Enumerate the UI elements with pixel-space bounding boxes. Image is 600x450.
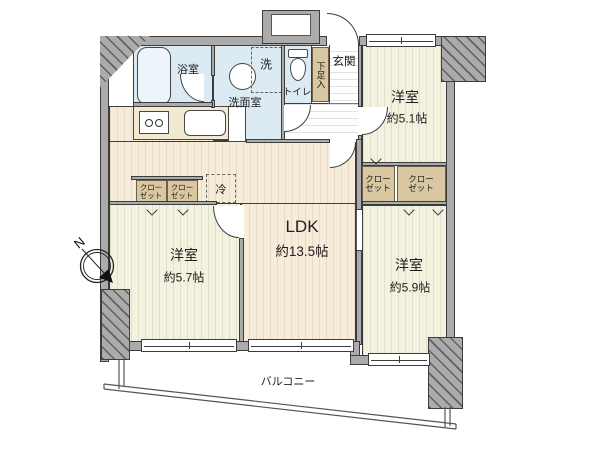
door-gap	[239, 205, 244, 238]
label-entrance: 玄関	[333, 53, 356, 69]
label-bath: 浴室	[177, 61, 199, 77]
wall-right	[446, 36, 455, 367]
kitchen-sink	[184, 110, 226, 136]
label-laundry: 洗	[260, 56, 272, 73]
corner-pillar-bottom-right	[428, 337, 463, 409]
label-refrigerator: 冷	[216, 181, 227, 197]
corner-pillar-bottom-left	[101, 289, 130, 360]
floor-plan: 浴室 洗面室 洗 トイレ 下足入 玄関 冷 LDK 約13.5帖 洋室 約5.7…	[0, 0, 600, 450]
wall	[211, 43, 215, 76]
burner-icon	[145, 119, 153, 127]
wall	[246, 139, 330, 143]
label-bedroom-bottom-right-size: 約5.9帖	[390, 279, 431, 296]
label-ldk: LDK	[285, 217, 318, 237]
wall	[362, 201, 448, 205]
label-bedroom-bottom-right: 洋室	[395, 255, 423, 275]
bathtub	[137, 47, 171, 105]
sliding-door	[356, 210, 362, 250]
wall	[356, 250, 362, 345]
compass-north-label: N	[71, 234, 88, 252]
kitchen-pillar	[228, 106, 246, 142]
label-shoe-cabinet: 下足入	[315, 62, 328, 89]
wall	[109, 201, 217, 205]
wall	[133, 102, 213, 107]
label-closet-right-2: クロー ゼット	[408, 175, 434, 193]
label-toilet: トイレ	[283, 84, 312, 98]
label-balcony: バルコニー	[261, 373, 316, 389]
entrance-step-line	[329, 103, 360, 104]
wall	[131, 176, 203, 180]
wall	[358, 43, 362, 107]
burner-icon	[155, 119, 163, 127]
label-bedroom-top-right: 洋室	[391, 87, 419, 107]
label-closet-left-2: クロー ゼット	[171, 184, 194, 200]
wall	[356, 139, 362, 210]
label-closet-right-1: クロー ゼット	[365, 175, 391, 193]
label-bedroom-left: 洋室	[170, 245, 198, 265]
label-bedroom-top-right-size: 約5.1帖	[387, 110, 428, 127]
meter-box-inner	[271, 14, 311, 36]
label-closet-left-1: クロー ゼット	[140, 184, 163, 200]
wall	[239, 238, 244, 343]
balcony-railing	[104, 360, 456, 429]
entrance-door-arc	[327, 13, 359, 45]
window-bedroom-left	[141, 339, 237, 352]
label-bedroom-left-size: 約5.7帖	[164, 269, 205, 286]
window-bedroom-top-right	[366, 34, 436, 47]
corner-pillar-top-right	[441, 36, 486, 82]
stove	[139, 111, 169, 134]
window-ldk	[248, 339, 354, 352]
label-washroom: 洗面室	[229, 94, 262, 110]
window-bedroom-bottom-right	[368, 353, 430, 366]
label-ldk-size: 約13.5帖	[275, 240, 328, 260]
toilet-tank	[288, 49, 308, 58]
